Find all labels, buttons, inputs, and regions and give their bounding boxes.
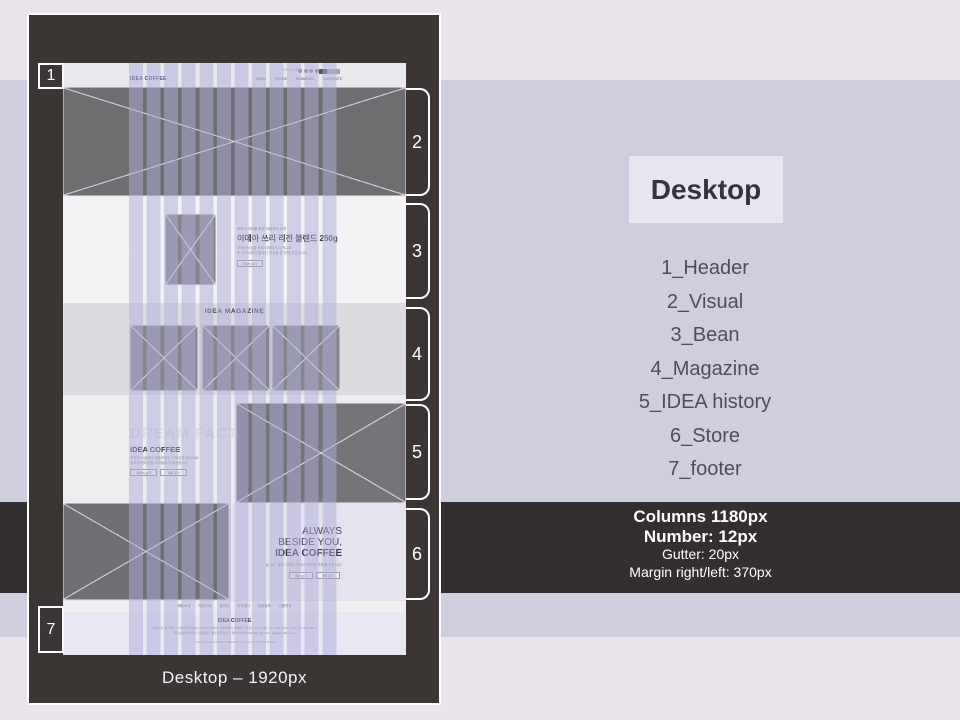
wf-magazine-section: IDEA MAGAZINE [63,303,406,395]
marker-4-magazine: 4 [406,307,430,401]
wf-header-section: IDEA COFFEE LOGIN JOIN MENU STORE REWARD… [63,63,406,87]
wf-search-bar [319,69,340,74]
section-list-item: 5_IDEA history [555,386,855,420]
wf-bean-title: 이데아 쓰리 리전 블렌드 250g [237,233,338,244]
wf-nav: MENU STORE REWARDS CONTENTS [256,77,342,81]
wf-footer-copyright: © 2023 IDEA COFFEE COMPANY. ALL RIGHTS R… [63,640,406,644]
wf-footer-nav: 제품소개 매장안내 멤버십 고객센터 채용정보 이용약관 [63,600,406,612]
wf-store-button-2: 매장 찾기 [316,572,340,579]
wf-bean-body-line2: 또 이겨내며 관찰하던 정성을 한 잔에 담았습니다. [237,251,308,256]
wf-history-section: DREAM FACTORY IDEA COFFEE 최선의 시설에서 만들어지는… [63,395,406,503]
wf-footer-nav-link: 채용정보 [258,604,271,609]
marker-2-visual: 2 [406,88,430,196]
spec-gutter: Gutter: 20px [441,546,960,564]
device-title: Desktop [651,174,761,206]
wf-footer-nav-link: 고객센터 [237,604,250,609]
section-list-item: 6_Store [555,420,855,454]
wf-magazine-card-3 [272,325,340,391]
wf-footer-section: IDEA COFFEE 대표이사 김이데아 | 사업자등록번호 123-45-6… [63,612,406,655]
section-list-item: 1_Header [555,252,855,286]
wf-bean-button: 자세히 보기 [237,260,263,267]
marker-1-header: 1 [38,63,64,89]
wf-store-button-1: 메뉴 보기 [289,572,313,579]
wf-footer-nav-link: 멤버십 [219,604,229,609]
slide: Columns 1180px Number: 12px Gutter: 20px… [0,0,960,720]
wf-footer-info-line2: 개인정보처리방침 | 이용약관 | 통신판매업신고 제2023-서울-0000호… [63,631,406,635]
wf-footer-info-line1: 대표이사 김이데아 | 사업자등록번호 123-45-67890 | 서울특별시… [63,626,406,630]
wf-history-image-placeholder [236,403,406,503]
wf-history-button-1: 자세히 보기 [130,469,157,476]
wf-store-section: ALWAYS BESIDE YOU, IDEA COFFEE 늘 당신 곁에, … [63,503,406,600]
wf-nav-store: STORE [275,77,287,81]
marker-3-bean: 3 [406,203,430,299]
wf-store-headline-line3: IDEA COFFEE [275,548,342,559]
wf-visual-image-placeholder [63,87,406,196]
wf-bean-tagline: 커피의 미래를 위한 이데아의 노력 [237,227,286,232]
wireframe-page: IDEA COFFEE LOGIN JOIN MENU STORE REWARD… [63,63,406,655]
panel-caption: Desktop – 1920px [63,668,406,688]
wf-history-title: IDEA COFFEE [130,445,180,454]
wf-visual-section [63,87,406,196]
wf-store-image-placeholder [63,503,229,600]
wf-social-icons [298,69,319,73]
spec-columns: Columns 1180px [441,507,960,527]
device-title-box: Desktop [629,156,783,223]
wf-logo: IDEA COFFEE [130,76,167,82]
wf-bean-section: 커피의 미래를 위한 이데아의 노력 이데아 쓰리 리전 블렌드 250g 이데… [63,196,406,303]
wf-store-headline-line1: ALWAYS [302,526,342,537]
wf-footer-nav-link: 매장안내 [198,604,211,609]
section-list-item: 7_footer [555,453,855,487]
section-list-item: 3_Bean [555,319,855,353]
wf-footer-nav-link: 이용약관 [279,604,292,609]
marker-5-history: 5 [406,404,430,500]
wf-nav-menu: MENU [256,77,266,81]
wf-magazine-card-1 [130,325,198,391]
wf-footer-nav-link: 제품소개 [177,604,190,609]
wf-store-headline-line2: BESIDE YOU, [278,537,342,548]
wf-store-body: 늘 당신 곁에, 이데아 커피가 따뜻한 하루를 전합니다. [266,563,342,568]
section-list-item: 4_Magazine [555,353,855,387]
spec-number: Number: 12px [441,527,960,547]
wf-magazine-title: IDEA MAGAZINE [63,308,406,315]
wf-history-body-line2: 최고의 커피맛을 고객들에게 제공합니다. [130,461,189,466]
wf-magazine-card-2 [202,325,270,391]
marker-6-store: 6 [406,508,430,600]
wf-nav-contents: CONTENTS [323,77,342,81]
marker-7-footer: 7 [38,606,64,653]
wf-history-button-2: 매장 찾기 [160,469,187,476]
wf-nav-rewards: REWARDS [296,77,314,81]
section-list-item: 2_Visual [555,286,855,320]
spec-margin: Margin right/left: 370px [441,564,960,582]
wf-footer-logo: IDEA COFFEE [63,618,406,624]
section-list: 1_Header 2_Visual 3_Bean 4_Magazine 5_ID… [555,252,855,487]
wf-bean-image-placeholder [165,214,216,285]
grid-specs: Columns 1180px Number: 12px Gutter: 20px… [441,507,960,581]
